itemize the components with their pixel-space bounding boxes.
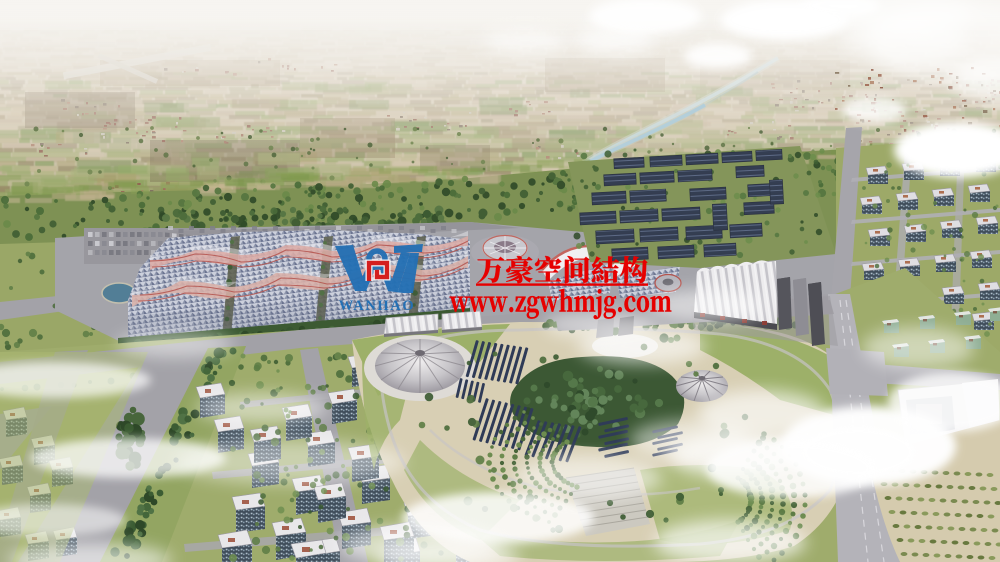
svg-text:WANHAO: WANHAO	[339, 298, 415, 314]
